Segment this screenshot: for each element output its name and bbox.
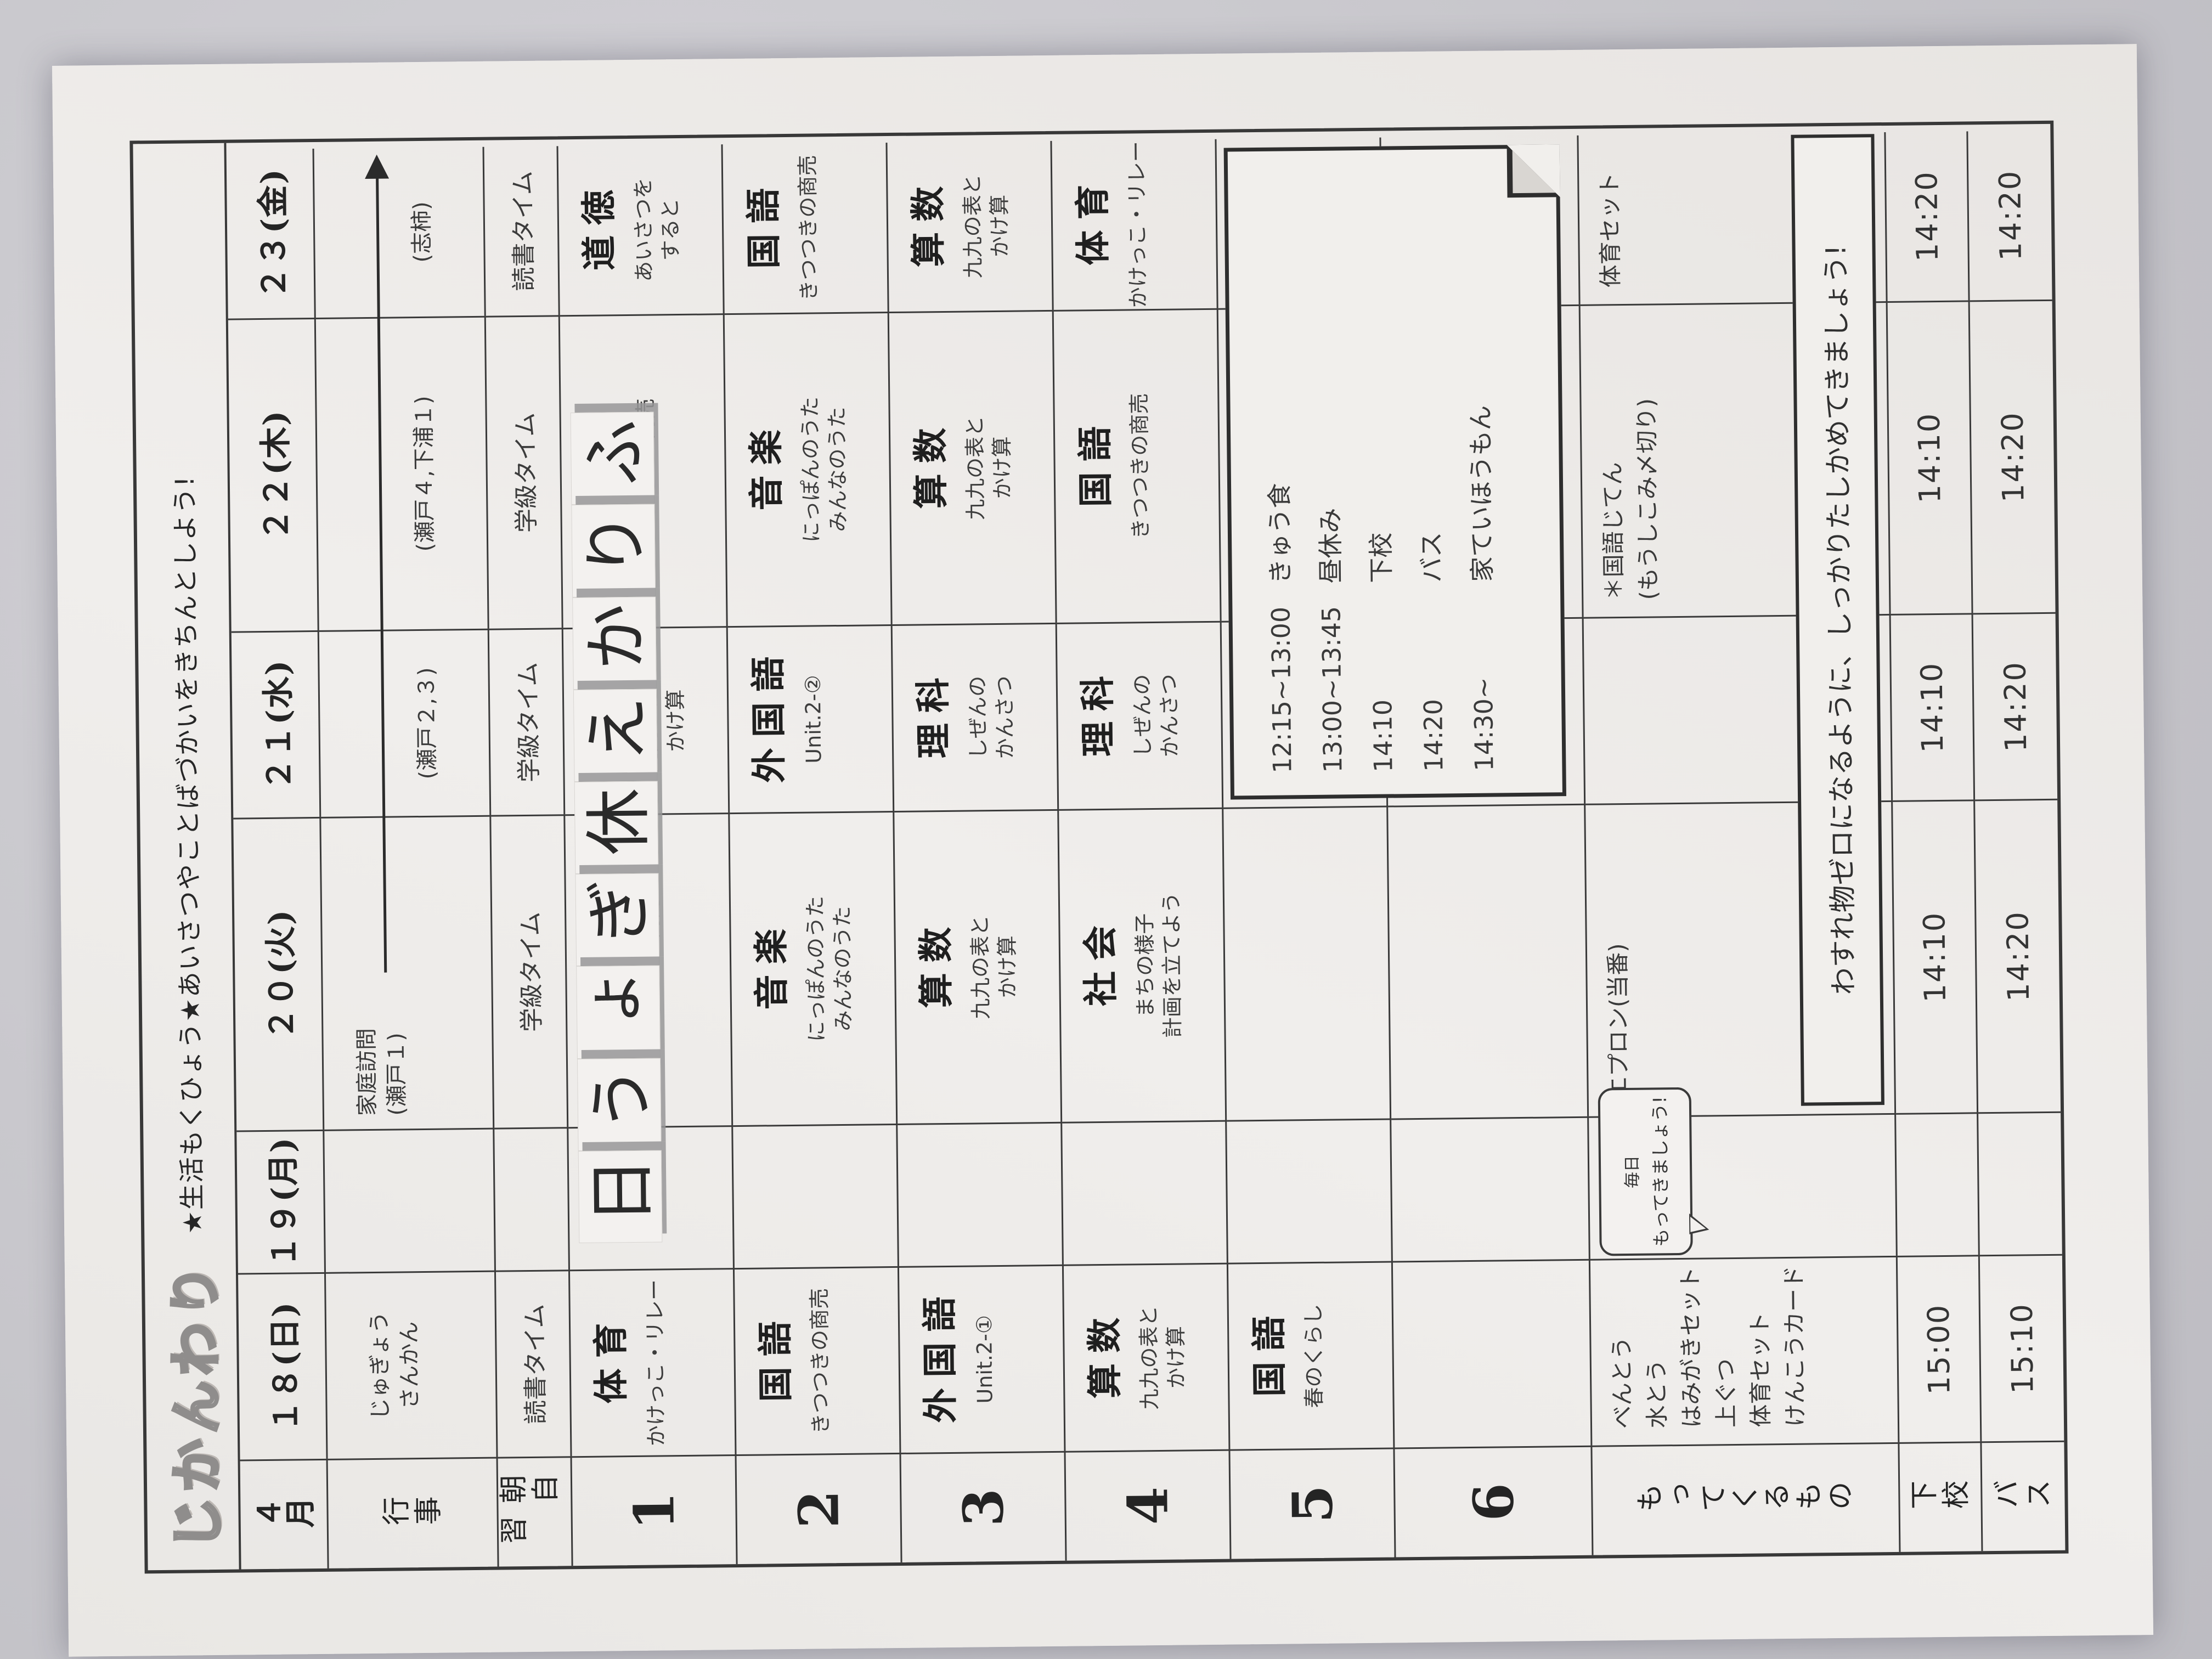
subject-label: 国語 bbox=[1241, 1305, 1293, 1408]
period-cell: 国語きつつきの商売 bbox=[735, 1266, 901, 1454]
photo-of-timetable: { "photo": { "background_color": "#c7c6c… bbox=[0, 0, 2212, 1659]
subject-label: 算数 bbox=[1076, 1307, 1128, 1409]
schedule-time: 14:20 bbox=[1407, 582, 1459, 772]
bus-time-cell: 14:20 bbox=[1973, 612, 2058, 800]
topic-label: まちの様子計画を立てよう bbox=[1131, 892, 1187, 1039]
life-goal-slogan: ★生活もくひょう★あいさつやことばづかいをきちんとしよう! bbox=[163, 475, 208, 1234]
title-row: じかんわり ★生活もくひょう★あいさつやことばづかいをきちんとしよう! bbox=[133, 143, 241, 1571]
row-label-period-6: 6 bbox=[1395, 1446, 1593, 1558]
subject-label: 理科 bbox=[905, 667, 956, 769]
home-visit-arrow-head-icon bbox=[365, 155, 389, 179]
holiday-overlay-char: か bbox=[572, 596, 657, 690]
date-header: ２３(金) bbox=[227, 149, 316, 319]
topic-label: きつつきの商売 bbox=[1126, 393, 1154, 539]
row-label-period-4: 4 bbox=[1065, 1449, 1231, 1561]
period-cell bbox=[898, 1122, 1064, 1266]
schedule-label: バス bbox=[1417, 532, 1447, 583]
period-cell bbox=[1062, 1120, 1228, 1265]
bring-item: ＊国語じてん bbox=[1594, 306, 1632, 601]
row-label-period-2: 2 bbox=[736, 1453, 902, 1564]
event-cell: じゅぎょうさんかん bbox=[326, 1271, 498, 1459]
topic-label: 九九の表とかけ算 bbox=[967, 915, 1022, 1019]
topic-label: しぜんのかんさつ bbox=[964, 675, 1019, 759]
period-cell bbox=[1391, 1116, 1590, 1261]
period-cell: 音楽にっぽんのうたみんなのうた bbox=[730, 811, 898, 1125]
holiday-overlay-char: ょ bbox=[576, 966, 661, 1059]
holiday-overlay-char: 休 bbox=[574, 781, 659, 874]
period-cell: 算数九九の表とかけ算 bbox=[894, 809, 1062, 1124]
bring-item: はみがきセット bbox=[1673, 1260, 1709, 1429]
period-cell: 算数九九の表とかけ算 bbox=[1064, 1263, 1231, 1451]
bubble-tail-icon bbox=[1689, 1213, 1709, 1234]
schedule-time: 14:10 bbox=[1356, 583, 1409, 772]
date-header: １８(日) bbox=[238, 1272, 328, 1460]
bring-item: (もうしこみ〆切り) bbox=[1628, 305, 1666, 600]
afternoon-schedule-line: 14:20バス bbox=[1402, 166, 1459, 772]
event-cell: (志柿) bbox=[314, 147, 486, 318]
subject-label: 算数 bbox=[907, 916, 959, 1019]
subject-label: 外国語 bbox=[911, 1286, 963, 1434]
topic-label: かけっこ・リレー bbox=[641, 1279, 670, 1447]
bring-item: 水とう bbox=[1638, 1260, 1674, 1429]
subject-label: 音楽 bbox=[743, 918, 794, 1021]
period-cell: 体育かけっこ・リレー bbox=[1052, 139, 1218, 310]
event-line: (瀬戸２,３) bbox=[411, 631, 443, 816]
row-label-gyouji: 行事 bbox=[328, 1457, 499, 1568]
morning-study-cell: 読書タイム bbox=[484, 146, 560, 315]
period-cell: 算数九九の表とかけ算 bbox=[889, 310, 1057, 624]
bring-item: 上ぐつ bbox=[1707, 1259, 1743, 1428]
period-cell: 国語春のくらし bbox=[1228, 1261, 1395, 1449]
morning-study-cell: 学級タイム bbox=[486, 315, 563, 628]
topic-label: Unit.2-① bbox=[971, 1315, 999, 1404]
bus-time-cell: 14:20 bbox=[1975, 799, 2061, 1113]
afternoon-schedule-lines: 12:15~13:00きゅう食13:00~13:45昼休み14:10下校14:2… bbox=[1251, 165, 1510, 774]
morning-study-cell: 学級タイム bbox=[491, 814, 568, 1127]
period-cell bbox=[1388, 804, 1589, 1119]
morning-study-cell: 読書タイム bbox=[496, 1269, 572, 1457]
timetable-grid: ふりかえ休ぎょう日 12:15~13:00きゅう食13:00~13:45昼休み1… bbox=[227, 131, 2066, 1570]
topic-label: 春のくらし bbox=[1300, 1304, 1328, 1408]
holiday-overlay-char: え bbox=[573, 689, 658, 782]
dismissal-time-cell: 14:10 bbox=[1893, 799, 1978, 1113]
event-line: (瀬戸４,下浦１) bbox=[408, 318, 441, 630]
event-line: (志柿) bbox=[407, 148, 438, 317]
subject-label: 体育 bbox=[583, 1312, 634, 1415]
page-title: じかんわり bbox=[152, 1259, 232, 1550]
morning-study-cell: 学級タイム bbox=[489, 628, 566, 815]
bring-item: 体育セット bbox=[1742, 1259, 1778, 1427]
row-label-period-1: 1 bbox=[572, 1454, 738, 1566]
date-header: ２０(火) bbox=[233, 817, 324, 1131]
dismissal-time-cell: 14:10 bbox=[1888, 300, 1973, 614]
bring-item: けんこうカード bbox=[1776, 1259, 1813, 1427]
afternoon-schedule-line: 13:00~13:45昼休み bbox=[1301, 167, 1358, 773]
topic-label: 九九の表とかけ算 bbox=[1136, 1305, 1191, 1410]
afternoon-schedule-line: 12:15~13:00きゅう食 bbox=[1251, 167, 1308, 774]
period-cell: 外国語Unit.2-② bbox=[728, 624, 895, 812]
period-cell: 音楽にっぽんのうたみんなのうた bbox=[725, 312, 893, 626]
afternoon-schedule-note: 12:15~13:00きゅう食13:00~13:45昼休み14:10下校14:2… bbox=[1224, 144, 1566, 799]
period-cell: 算数九九の表とかけ算 bbox=[887, 141, 1053, 312]
subject-label: 国語 bbox=[1067, 415, 1119, 518]
bubble-line1: 毎日 bbox=[1618, 1155, 1643, 1188]
subject-label: 国語 bbox=[747, 1311, 799, 1413]
afternoon-schedule-line: 14:10下校 bbox=[1352, 166, 1409, 772]
topic-label: あいさつをすると bbox=[630, 177, 685, 282]
dismissal-time-cell: 14:10 bbox=[1891, 613, 1976, 800]
subject-label: 理科 bbox=[1069, 665, 1121, 768]
period-cell: 体育かけっこ・リレー bbox=[570, 1268, 737, 1456]
holiday-overlay-char: ふ bbox=[571, 412, 655, 505]
row-label-gekou: 下校 bbox=[1899, 1441, 1983, 1552]
topic-label: しぜんのかんさつ bbox=[1129, 674, 1184, 758]
date-header: １９(月) bbox=[236, 1130, 326, 1273]
bus-time-cell bbox=[1978, 1111, 2062, 1255]
date-header: ２１(水) bbox=[232, 630, 321, 818]
date-header: ２２(木) bbox=[228, 318, 319, 631]
period-cell bbox=[1393, 1259, 1593, 1448]
topic-label: にっぽんのうたみんなのうた bbox=[797, 396, 853, 543]
holiday-overlay-char: 日 bbox=[578, 1150, 663, 1243]
schedule-time: 12:15~13:00 bbox=[1255, 584, 1308, 774]
event-cell: 家庭訪問(瀬戸１) bbox=[321, 815, 494, 1130]
substitute-holiday-overlay: ふりかえ休ぎょう日 bbox=[571, 411, 687, 1243]
afternoon-schedule-line: 14:30~家ていほうもん bbox=[1453, 165, 1510, 771]
period-cell: 国語きつつきの商売 bbox=[723, 143, 889, 313]
schedule-label: 家ていほうもん bbox=[1466, 405, 1497, 582]
schedule-time: 14:30~ bbox=[1457, 582, 1510, 771]
topic-label: きつつきの商売 bbox=[794, 155, 823, 301]
row-label-period-3: 3 bbox=[901, 1451, 1066, 1562]
bring-items-cell: べんとう水とうはみがきセット上ぐつ体育セットけんこうカード bbox=[1590, 1256, 1900, 1446]
topic-label: Unit.2-② bbox=[800, 675, 828, 764]
morning-study-cell bbox=[494, 1127, 570, 1270]
bus-time-cell: 15:10 bbox=[1980, 1254, 2064, 1442]
subject-label: 社会 bbox=[1072, 915, 1124, 1017]
period-cell: 国語きつつきの商売 bbox=[1054, 308, 1222, 623]
bring-item: 体育セット bbox=[1592, 135, 1628, 288]
subject-label: 国語 bbox=[735, 177, 787, 280]
subject-label: 算数 bbox=[900, 176, 951, 278]
dismissal-time-cell bbox=[1896, 1112, 1980, 1256]
topic-label: きつつきの商売 bbox=[806, 1288, 834, 1435]
timetable-paper: じかんわり ★生活もくひょう★あいさつやことばづかいをきちんとしよう! ふりかえ… bbox=[52, 44, 2153, 1657]
event-cell: (瀬戸４,下浦１) bbox=[316, 316, 489, 630]
topic-label: 九九の表とかけ算 bbox=[959, 174, 1014, 279]
subject-label: 体育 bbox=[1064, 174, 1116, 276]
event-cell bbox=[324, 1128, 496, 1272]
event-line: さんかん bbox=[394, 1273, 426, 1458]
period-cell: 社会まちの様子計画を立てよう bbox=[1059, 808, 1227, 1122]
topic-label: かけっこ・リレー bbox=[1123, 141, 1152, 308]
schedule-label: 昼休み bbox=[1315, 507, 1345, 584]
period-cell bbox=[1223, 806, 1391, 1120]
holiday-overlay-char: ぎ bbox=[575, 873, 659, 967]
period-cell: 道徳あいさつをすると bbox=[558, 144, 725, 315]
schedule-label: 下校 bbox=[1366, 532, 1396, 583]
holiday-overlay-char: り bbox=[571, 504, 656, 597]
bus-time-cell: 14:20 bbox=[1968, 131, 2052, 301]
subject-label: 算数 bbox=[902, 417, 954, 520]
timetable-sheet: じかんわり ★生活もくひょう★あいさつやことばづかいをきちんとしよう! ふりかえ… bbox=[129, 121, 2068, 1574]
subject-label: 外国語 bbox=[740, 646, 792, 794]
topic-label: 九九の表とかけ算 bbox=[962, 415, 1017, 520]
schedule-label: きゅう食 bbox=[1265, 483, 1295, 584]
dismissal-time-cell: 15:00 bbox=[1898, 1255, 1982, 1442]
schedule-time: 13:00~13:45 bbox=[1306, 583, 1358, 773]
bring-item: エプロン(当番) bbox=[1599, 805, 1637, 1100]
period-cell: 理科しぜんのかんさつ bbox=[893, 623, 1059, 811]
row-label-mottekuru: もってくるもの bbox=[1592, 1442, 1900, 1555]
period-cell bbox=[1227, 1119, 1393, 1263]
holiday-overlay-char: う bbox=[577, 1058, 662, 1151]
row-label-asajishu: 朝自習 bbox=[498, 1456, 573, 1566]
everyday-bring-bubble: 毎日 もってきましょう! bbox=[1598, 1087, 1693, 1256]
forget-nothing-reminder: わすれ物ゼロになるように、しっかりたしかめてきましょう! bbox=[1791, 134, 1884, 1105]
topic-label: にっぽんのうたみんなのうた bbox=[802, 895, 858, 1042]
bubble-line2: もってきましょう! bbox=[1645, 1096, 1673, 1247]
period-cell: 理科しぜんのかんさつ bbox=[1057, 621, 1224, 809]
event-line: じゅぎょう bbox=[364, 1273, 396, 1459]
event-cell: (瀬戸２,３) bbox=[319, 629, 492, 817]
month-header: ４月 bbox=[240, 1459, 329, 1570]
subject-label: 音楽 bbox=[738, 419, 789, 522]
dismissal-time-cell: 14:20 bbox=[1886, 131, 1970, 301]
subject-label: 道徳 bbox=[571, 179, 622, 281]
period-cell bbox=[733, 1124, 899, 1268]
bring-item: べんとう bbox=[1604, 1260, 1640, 1429]
row-label-period-5: 5 bbox=[1230, 1447, 1396, 1559]
event-line: 家庭訪問 bbox=[349, 818, 382, 1116]
period-cell: 外国語Unit.2-① bbox=[899, 1265, 1066, 1453]
folded-corner-icon bbox=[1507, 144, 1560, 198]
row-label-bus: バス bbox=[1982, 1441, 2065, 1551]
bus-time-cell: 14:20 bbox=[1970, 300, 2056, 613]
